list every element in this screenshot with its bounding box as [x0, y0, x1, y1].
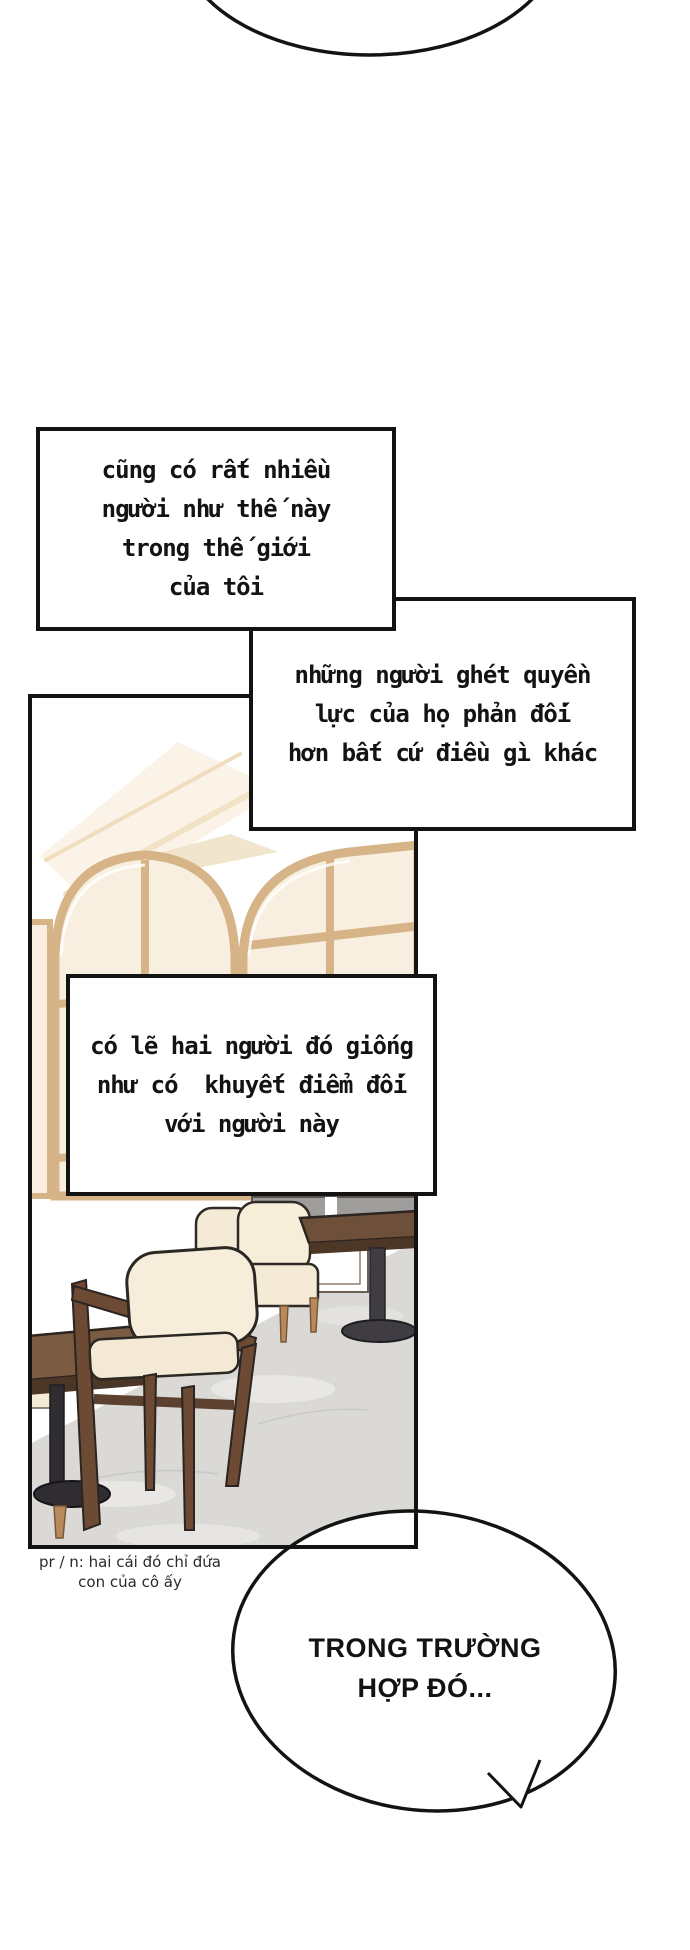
- narration-box-3: có lẽ hai người đó giống như có khuyết đ…: [66, 974, 437, 1196]
- speech-bubble-line: TRONG TRƯỜNG: [260, 1628, 590, 1668]
- narration-line: người như thế này: [102, 490, 331, 529]
- narration-line: cũng có rất nhiều: [102, 451, 331, 490]
- top-partial-bubble: [180, 0, 560, 55]
- translator-note-line: con của cô ấy: [24, 1572, 236, 1592]
- narration-line: với người này: [164, 1105, 339, 1144]
- speech-bubble-text: TRONG TRƯỜNG HỢP ĐÓ...: [260, 1628, 590, 1708]
- translator-note-line: pr / n: hai cái đó chỉ đứa: [24, 1552, 236, 1572]
- narration-line: hơn bất cứ điều gì khác: [288, 734, 597, 773]
- narration-line: lực của họ phản đối: [315, 695, 571, 734]
- narration-line: những người ghét quyền: [295, 656, 591, 695]
- narration-box-2: những người ghét quyền lực của họ phản đ…: [249, 597, 636, 831]
- speech-bubble-line: HỢP ĐÓ...: [260, 1668, 590, 1708]
- narration-line: trong thế giới: [122, 529, 310, 568]
- narration-box-1: cũng có rất nhiều người như thế này tron…: [36, 427, 396, 631]
- narration-line: như có khuyết điểm đối: [97, 1066, 406, 1105]
- comic-page: cũng có rất nhiều người như thế này tron…: [0, 0, 690, 1950]
- narration-line: của tôi: [169, 568, 263, 607]
- narration-line: có lẽ hai người đó giống: [90, 1027, 413, 1066]
- translator-note: pr / n: hai cái đó chỉ đứa con của cô ấy: [24, 1552, 236, 1592]
